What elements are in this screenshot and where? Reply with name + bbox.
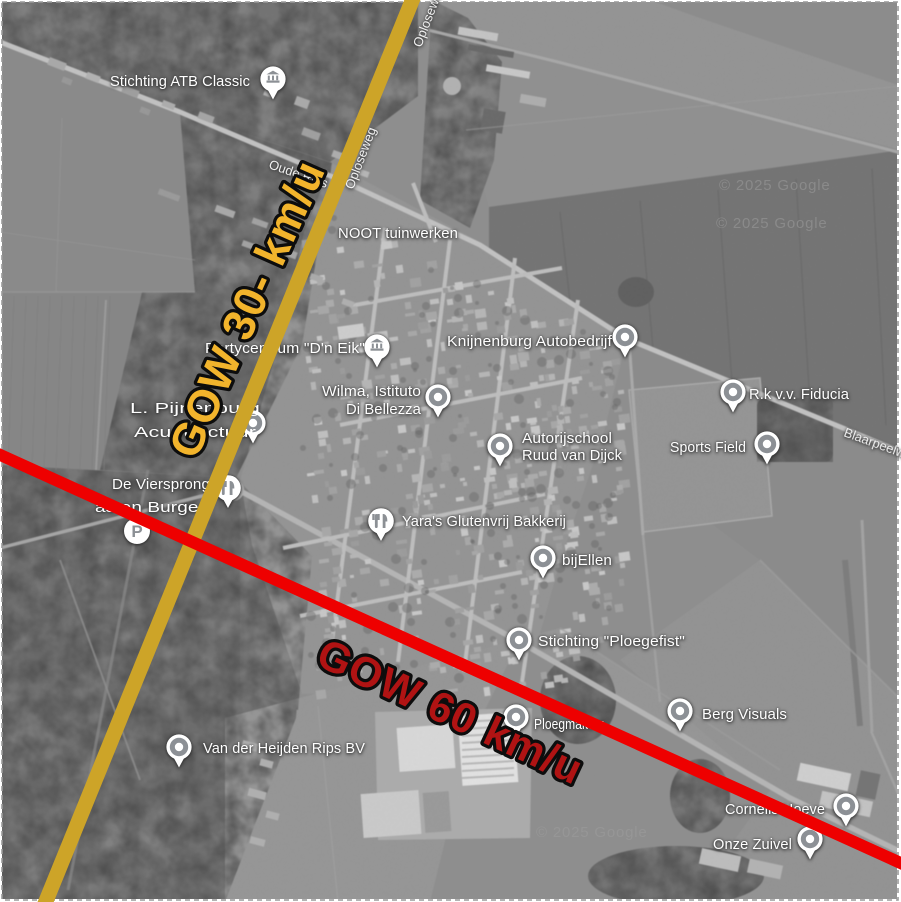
svg-text:Onze Zuivel: Onze Zuivel — [713, 836, 792, 853]
svg-text:© 2025 Google: © 2025 Google — [716, 215, 828, 232]
svg-text:NOOT tuinwerken: NOOT tuinwerken — [338, 225, 458, 242]
svg-text:Sports Field: Sports Field — [670, 439, 746, 456]
svg-text:Knijnenburg Autobedrijf: Knijnenburg Autobedrijf — [447, 333, 613, 350]
svg-text:Yara's Glutenvrij Bakkerij: Yara's Glutenvrij Bakkerij — [402, 513, 566, 530]
svg-text:Van der Heijden Rips BV: Van der Heijden Rips BV — [203, 740, 365, 757]
svg-text:© 2025 Google: © 2025 Google — [536, 824, 648, 841]
svg-text:Stichting ATB Classic: Stichting ATB Classic — [110, 73, 250, 90]
svg-text:De Viersprong: De Viersprong — [112, 476, 210, 493]
svg-text:Ruud van Dijck: Ruud van Dijck — [522, 447, 622, 464]
svg-text:R.k v.v. Fiducia: R.k v.v. Fiducia — [749, 386, 850, 403]
svg-text:Wilma, Istituto: Wilma, Istituto — [322, 383, 421, 400]
svg-text:bijEllen: bijEllen — [562, 552, 612, 569]
svg-text:© 2025 Google: © 2025 Google — [719, 177, 831, 194]
svg-text:Autorijschool: Autorijschool — [522, 430, 612, 447]
svg-text:Berg Visuals: Berg Visuals — [702, 706, 787, 723]
svg-text:Stichting "Ploegefist": Stichting "Ploegefist" — [538, 633, 685, 650]
svg-text:Di Bellezza: Di Bellezza — [346, 401, 422, 418]
